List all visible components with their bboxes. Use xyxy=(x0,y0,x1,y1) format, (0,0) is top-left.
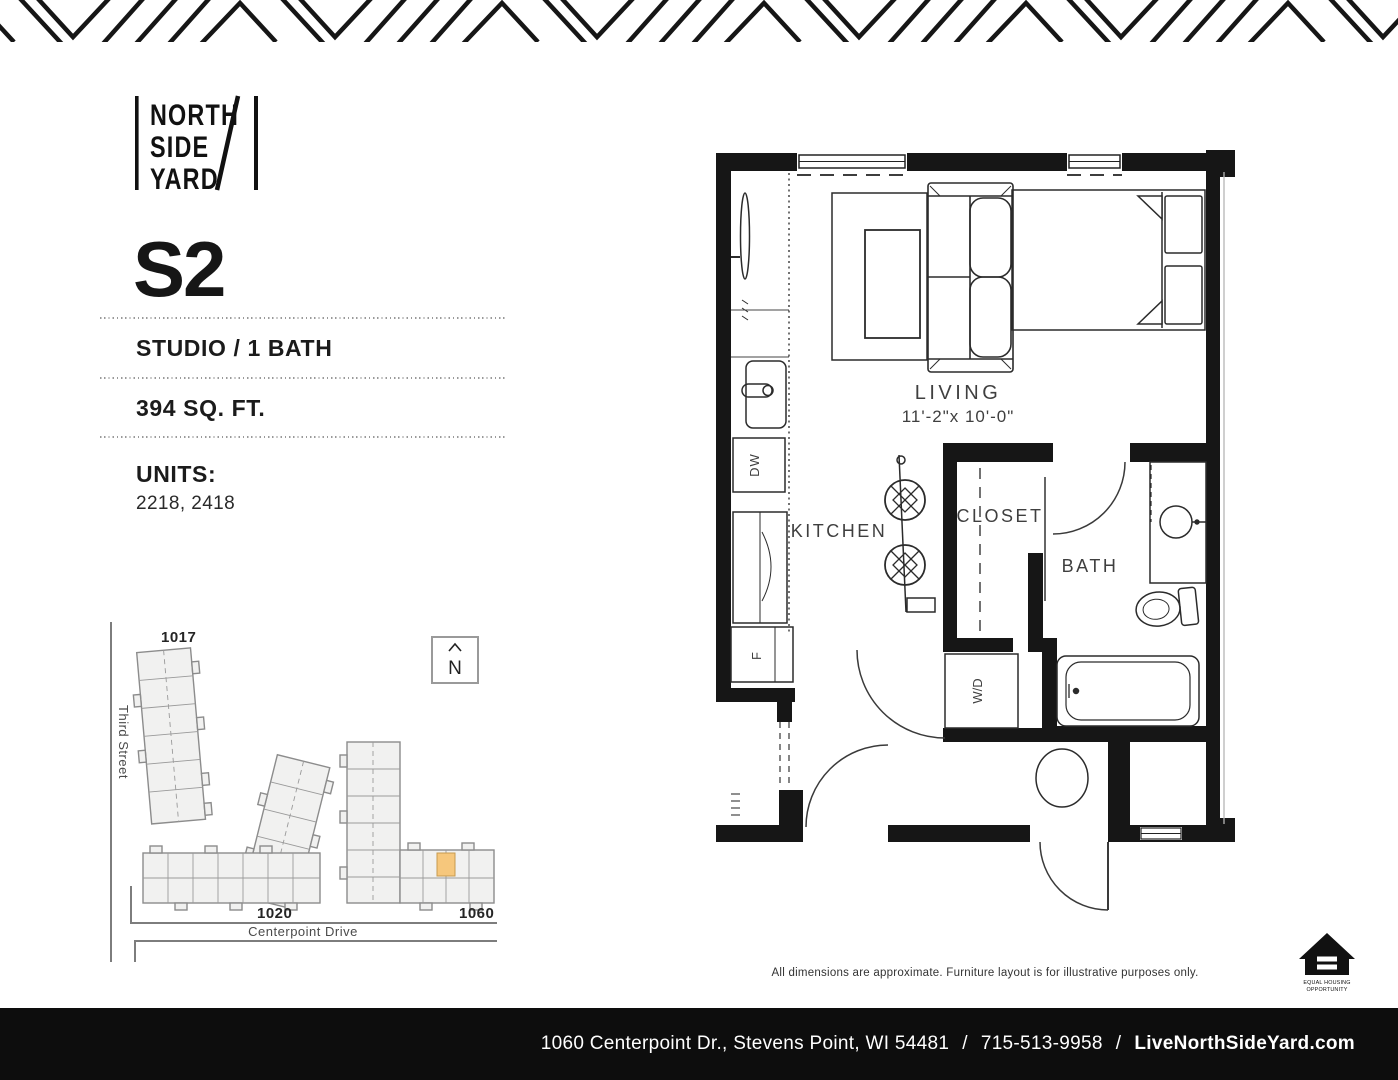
chevron-banner xyxy=(0,0,1398,42)
eho-line2: OPPORTUNITY xyxy=(1306,987,1347,993)
fridge-label: F xyxy=(749,652,764,660)
footer-separator: / xyxy=(1103,1033,1135,1055)
bath-sink xyxy=(1160,506,1192,538)
wd-door-arc xyxy=(857,650,945,738)
kitchen-label: KITCHEN xyxy=(791,521,888,541)
building-label: 1017 xyxy=(161,629,196,646)
wall-table xyxy=(741,193,750,279)
logo-word-north: NORTH xyxy=(150,98,239,131)
footer-address: 1060 Centerpoint Dr., Stevens Point, WI … xyxy=(541,1033,950,1055)
logo-word-side: SIDE xyxy=(150,130,209,163)
entry-door-arc xyxy=(806,745,888,827)
bar-counter xyxy=(897,455,935,612)
street-label-third: Third Street xyxy=(116,705,131,779)
footer-separator: / xyxy=(949,1033,981,1055)
coffee-table xyxy=(865,230,920,338)
room-labels: LIVING 11'-2"x 10'-0" KITCHEN CLOSET BAT… xyxy=(747,382,1118,704)
bath-door-arc xyxy=(1053,462,1125,534)
living-label: LIVING xyxy=(915,382,1002,404)
street-label-centerpoint: Centerpoint Drive xyxy=(248,924,358,939)
building-1017: 1017 xyxy=(130,629,213,825)
bathtub xyxy=(1057,656,1199,726)
flyer-page: NORTH SIDE YARD S2 STUDIO / 1 BATH 394 S… xyxy=(0,0,1398,1080)
building-label: 1020 xyxy=(257,905,292,922)
bath-label: BATH xyxy=(1062,556,1119,576)
building-label: 1060 xyxy=(459,905,494,922)
units-values: 2218, 2418 xyxy=(136,493,235,515)
plan-type: STUDIO / 1 BATH xyxy=(136,335,332,362)
divider xyxy=(100,377,506,379)
kitchen-fixtures xyxy=(731,173,793,682)
logo-word-yard: YARD xyxy=(150,162,219,195)
logo-right-bar xyxy=(254,96,258,190)
closet-label: CLOSET xyxy=(956,506,1043,526)
footer-phone: 715-513-9958 xyxy=(981,1033,1103,1055)
walls xyxy=(716,150,1235,842)
rug xyxy=(832,193,927,360)
north-arrow: N xyxy=(432,637,478,683)
living-furniture xyxy=(832,183,1205,612)
disclaimer-text: All dimensions are approximate. Furnitur… xyxy=(650,967,1320,979)
highlighted-unit xyxy=(437,853,455,876)
units-label: UNITS: xyxy=(136,461,216,488)
north-side-yard-logo: NORTH SIDE YARD xyxy=(128,85,268,197)
floor-plan: LIVING 11'-2"x 10'-0" KITCHEN CLOSET BAT… xyxy=(700,140,1245,920)
equal-housing-opportunity-logo: EQUAL HOUSING OPPORTUNITY xyxy=(1296,930,1358,996)
eho-line1: EQUAL HOUSING xyxy=(1303,980,1350,986)
north-label: N xyxy=(448,658,462,679)
logo-left-bar xyxy=(135,96,139,190)
plan-area: 394 SQ. FT. xyxy=(136,395,265,422)
living-dimensions: 11'-2"x 10'-0" xyxy=(902,407,1015,426)
site-map: Third Street Centerpoint Drive N xyxy=(95,615,510,965)
dishwasher-label: DW xyxy=(747,453,762,477)
exterior-door-arc xyxy=(1040,842,1108,910)
divider xyxy=(100,317,506,319)
footer-website: LiveNorthSideYard.com xyxy=(1134,1033,1355,1055)
plan-name: S2 xyxy=(133,230,224,308)
building-1060: 1060 xyxy=(340,742,494,922)
sofa xyxy=(928,183,1013,372)
bed xyxy=(1012,190,1205,330)
footer-bar: 1060 Centerpoint Dr., Stevens Point, WI … xyxy=(0,1008,1398,1080)
entry-table xyxy=(1036,749,1088,807)
bar-stool xyxy=(885,480,925,520)
washer-dryer-label: W/D xyxy=(970,678,985,703)
divider xyxy=(100,436,506,438)
bath-fixtures xyxy=(1057,462,1206,726)
toilet xyxy=(1134,587,1199,630)
